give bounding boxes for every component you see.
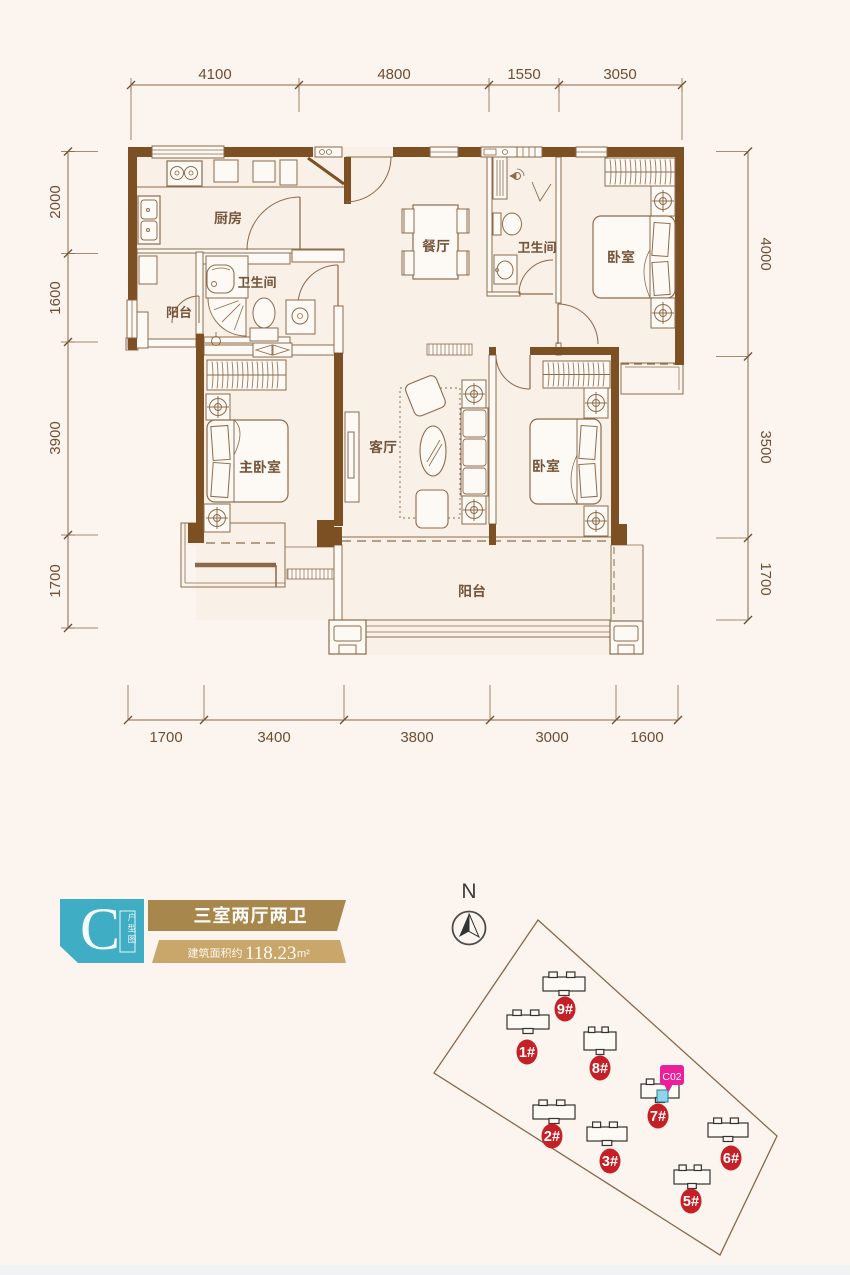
svg-text:1600: 1600 — [47, 281, 64, 314]
svg-text:C: C — [80, 896, 120, 962]
svg-text:3500: 3500 — [757, 430, 774, 463]
svg-text:3#: 3# — [602, 1154, 618, 1170]
svg-text:3050: 3050 — [603, 66, 636, 83]
svg-text:1600: 1600 — [630, 729, 663, 746]
svg-text:5#: 5# — [683, 1194, 699, 1210]
svg-text:2#: 2# — [544, 1129, 560, 1145]
svg-text:1700: 1700 — [149, 729, 182, 746]
svg-text:3800: 3800 — [400, 729, 433, 746]
svg-text:118.23: 118.23 — [245, 943, 297, 964]
svg-text:3400: 3400 — [257, 729, 290, 746]
svg-text:1700: 1700 — [757, 562, 774, 595]
svg-text:4000: 4000 — [757, 237, 774, 270]
svg-text:4800: 4800 — [377, 66, 410, 83]
svg-text:C02: C02 — [662, 1071, 681, 1083]
svg-text:1700: 1700 — [47, 564, 64, 597]
svg-text:N: N — [461, 880, 476, 903]
svg-text:9#: 9# — [557, 1002, 573, 1018]
svg-text:1550: 1550 — [507, 66, 540, 83]
svg-text:3000: 3000 — [535, 729, 568, 746]
svg-text:1#: 1# — [519, 1045, 535, 1061]
svg-text:7#: 7# — [650, 1109, 666, 1125]
svg-text:2000: 2000 — [47, 185, 64, 218]
svg-text:3900: 3900 — [47, 421, 64, 454]
svg-text:8#: 8# — [592, 1061, 608, 1077]
svg-text:6#: 6# — [723, 1151, 739, 1167]
svg-text:4100: 4100 — [198, 66, 231, 83]
svg-text:m²: m² — [297, 948, 310, 960]
